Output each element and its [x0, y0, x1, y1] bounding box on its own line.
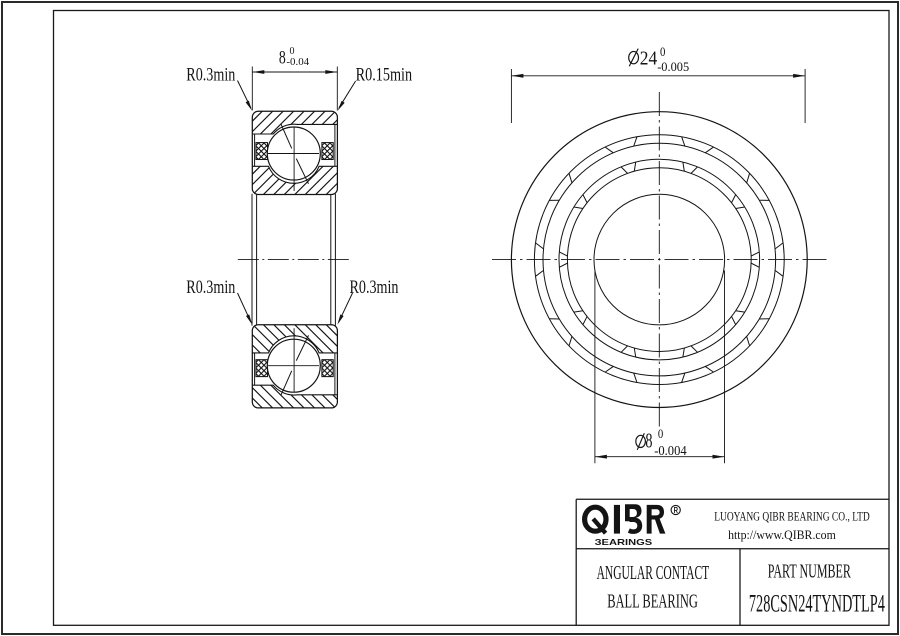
svg-text:R0.3min: R0.3min	[186, 277, 235, 298]
svg-text:8: 8	[279, 47, 286, 68]
svg-text:BALL BEARING: BALL BEARING	[607, 591, 698, 613]
svg-text:R0.3min: R0.3min	[186, 64, 235, 85]
svg-text:728CSN24TYNDTLP4: 728CSN24TYNDTLP4	[749, 588, 885, 617]
svg-text:-0.04: -0.04	[286, 56, 309, 68]
svg-text:8: 8	[645, 431, 652, 453]
svg-text:ANGULAR CONTACT: ANGULAR CONTACT	[597, 562, 710, 584]
svg-text:0: 0	[658, 426, 663, 441]
svg-text:R0.15min: R0.15min	[356, 65, 413, 86]
svg-text:-0.004: -0.004	[654, 443, 687, 458]
svg-text:LUOYANG QIBR BEARING CO., LTD: LUOYANG QIBR BEARING CO., LTD	[714, 509, 870, 523]
svg-text:R: R	[674, 506, 679, 515]
svg-text:http://www.QIBR.com: http://www.QIBR.com	[728, 528, 836, 542]
svg-text:PART NUMBER: PART NUMBER	[768, 560, 851, 582]
svg-text:-0.005: -0.005	[657, 60, 689, 74]
svg-text:ЗEARINGS: ЗEARINGS	[595, 537, 653, 547]
svg-text:0: 0	[660, 45, 665, 59]
svg-text:R0.3min: R0.3min	[350, 277, 399, 298]
svg-text:24: 24	[640, 48, 658, 69]
